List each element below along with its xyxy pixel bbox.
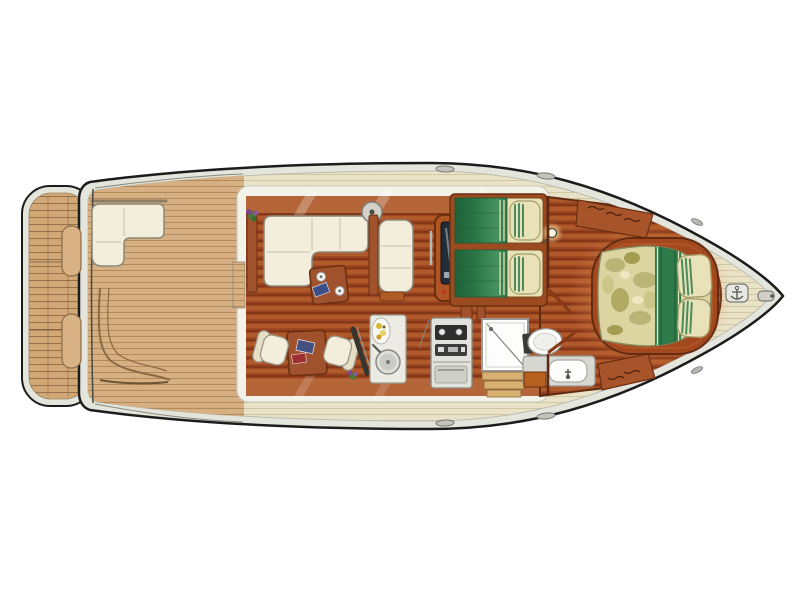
sideboard bbox=[247, 212, 257, 292]
swim-step-pad bbox=[62, 226, 81, 276]
pillow bbox=[677, 254, 713, 298]
chaise-bench bbox=[379, 220, 413, 292]
bed-green-band bbox=[655, 245, 681, 351]
guest-cabin bbox=[450, 194, 563, 306]
pillow bbox=[677, 298, 711, 338]
wet-bar bbox=[370, 315, 406, 383]
wall-lamp bbox=[541, 222, 563, 244]
vanity bbox=[523, 356, 595, 387]
dinette-table bbox=[287, 330, 327, 376]
single-berth bbox=[455, 250, 543, 297]
chaise-step bbox=[380, 292, 404, 301]
floor-plan-canvas bbox=[0, 0, 800, 600]
swim-step-pad bbox=[62, 314, 81, 368]
coffee-table bbox=[309, 265, 349, 305]
anchor-windlass bbox=[726, 284, 748, 302]
companionway-steps bbox=[482, 372, 526, 397]
single-berth bbox=[455, 198, 543, 243]
deck-cleat bbox=[436, 420, 454, 427]
step-block bbox=[524, 372, 546, 387]
deck-cleat bbox=[691, 217, 704, 227]
deck-cleat bbox=[691, 365, 704, 375]
master-cabin bbox=[592, 238, 718, 354]
deck-cleat bbox=[436, 166, 454, 173]
yacht-floor-plan-image bbox=[0, 0, 800, 600]
sliding-door-opening bbox=[233, 262, 245, 308]
chaise-back-trim bbox=[369, 215, 378, 295]
book bbox=[292, 353, 307, 364]
